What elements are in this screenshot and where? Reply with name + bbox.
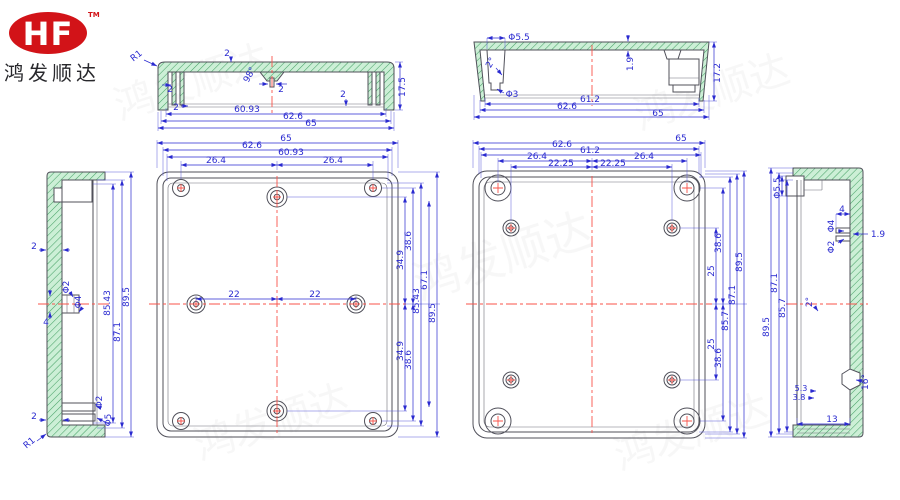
- dim-label: 2: [340, 90, 346, 100]
- lid-side-top-step: [62, 180, 92, 202]
- corner-screw-hole: [173, 180, 190, 197]
- dim-label: Φ5.5: [508, 33, 529, 43]
- dim-label: 13: [826, 415, 837, 425]
- dim-label: 25: [707, 265, 717, 276]
- drawing-canvas: 鸿发顺达 鸿发顺达 鸿发顺达 鸿发顺达 鸿发顺达 HF TM 鸿发顺达: [0, 0, 900, 500]
- dim-label: 26.4: [527, 152, 547, 162]
- base-screw-post: [487, 50, 505, 90]
- background-watermark: 鸿发顺达 鸿发顺达 鸿发顺达 鸿发顺达 鸿发顺达: [109, 36, 795, 479]
- base-side-rib: [836, 236, 850, 241]
- logo-trademark: TM: [88, 11, 100, 19]
- dim-label: 67.1: [420, 270, 430, 290]
- dim-label: 89.5: [735, 252, 745, 272]
- lid-mid-outline: [163, 178, 392, 431]
- dim-label: 26.4: [206, 156, 226, 166]
- dim-label: 62.6: [283, 112, 303, 122]
- dim-label: 87.1: [728, 285, 738, 305]
- extension-lines: [473, 140, 747, 438]
- dim-label: R1: [22, 436, 38, 451]
- corner-screw-hole: [365, 413, 382, 430]
- dim-label: 85.7: [721, 311, 731, 331]
- lid-fin: [376, 72, 380, 105]
- dim-label: 65: [675, 134, 686, 144]
- inner-screw-hole: [664, 220, 680, 236]
- dim-label: 2: [173, 103, 179, 113]
- dim-label: 2: [31, 412, 37, 422]
- dim-label: 85.7: [778, 298, 788, 318]
- dim-label: Φ5.5: [773, 177, 783, 198]
- dim-label: 22.25: [600, 159, 626, 169]
- lid-fin: [368, 72, 372, 105]
- watermark-text: 鸿发顺达: [629, 46, 795, 139]
- dim-label: 38.6: [404, 350, 414, 370]
- dim-label: 60.93: [234, 105, 260, 115]
- corner-boss: [485, 408, 511, 434]
- lid-side-notch: [54, 188, 62, 202]
- dim-label: 1.9: [626, 57, 636, 72]
- base-right-notch: [664, 50, 681, 59]
- dim-label: 38.6: [714, 233, 724, 253]
- dim-label: 38.6: [404, 231, 414, 251]
- dim-label: 38.6: [714, 348, 724, 368]
- dim-label: Φ5: [104, 414, 114, 427]
- cad-drawing-sheet: 鸿发顺达 鸿发顺达 鸿发顺达 鸿发顺达 鸿发顺达 HF TM 鸿发顺达: [0, 0, 900, 500]
- base-side-view: Φ5.5 4 Φ4 Φ2 1.9 2° 16° 5.3 3.8 13 85.7 …: [762, 168, 885, 437]
- corner-screw-hole: [173, 413, 190, 430]
- base-side-notch: [842, 369, 860, 390]
- dim-label: 4: [43, 318, 49, 328]
- dim-label: 22.25: [548, 159, 574, 169]
- dim-label: 4: [839, 205, 845, 215]
- base-right-foot: [673, 85, 695, 92]
- dim-label: 2: [167, 85, 173, 95]
- dim-label: 2: [278, 85, 284, 95]
- inner-screw-hole: [503, 372, 519, 388]
- watermark-text: 鸿发顺达: [189, 376, 355, 469]
- dim-label: 87.1: [770, 273, 780, 293]
- dim-label: 85.43: [103, 290, 113, 316]
- dim-label: 85.43: [412, 288, 422, 314]
- dim-label: 5.3: [795, 384, 808, 393]
- dim-label: Φ2: [62, 281, 72, 294]
- watermark-text: 鸿发顺达: [407, 202, 599, 310]
- dim-label: Φ4: [74, 295, 84, 308]
- dim-label: 26.4: [634, 152, 654, 162]
- base-side-rib: [836, 228, 850, 233]
- dim-label: 62.6: [557, 102, 577, 112]
- dim-label: 2: [224, 49, 230, 59]
- dim-label: 16°: [861, 374, 871, 390]
- dim-label: 26.4: [323, 156, 343, 166]
- dim-label: 61.2: [580, 95, 600, 105]
- dim-label: 2°: [805, 297, 815, 307]
- dim-label: Φ4: [827, 219, 837, 232]
- lid-side-view: 2 2 Φ2 Φ4 4 Φ2 Φ5 R1 85.43 87.1 89.5: [22, 172, 134, 451]
- dim-label: 22: [309, 290, 320, 300]
- base-face-view: 65 62.6 61.2 26.4 26.4 22.25 22.25 25 25…: [466, 134, 747, 438]
- dim-label: 65: [652, 109, 663, 119]
- corner-screw-hole: [365, 180, 382, 197]
- dim-label: 3.8: [793, 393, 806, 402]
- dim-label: R1: [129, 49, 145, 64]
- dim-label: 89.5: [428, 303, 438, 323]
- dim-label: 87.1: [113, 322, 123, 342]
- dim-label: 61.2: [580, 146, 600, 156]
- dim-label: 89.5: [122, 287, 132, 307]
- company-logo: HF TM 鸿发顺达: [4, 11, 100, 85]
- lid-fin: [180, 72, 184, 105]
- dim-label: 1.9: [871, 230, 886, 240]
- dim-label: 62.6: [242, 141, 262, 151]
- dim-label: 60.93: [278, 148, 304, 158]
- dim-label: 2: [31, 242, 37, 252]
- base-inner-outline: [484, 182, 694, 427]
- dim-label: 22: [228, 290, 239, 300]
- dim-label: Φ2: [827, 241, 837, 254]
- lid-side-groove: [62, 403, 95, 411]
- dim-label: Φ2: [95, 396, 105, 409]
- dim-label: 65: [305, 119, 316, 129]
- base-right-block: [669, 59, 699, 85]
- inner-screw-hole: [664, 372, 680, 388]
- dim-label: 17.2: [713, 63, 723, 83]
- dim-label: 62.6: [552, 140, 572, 150]
- dimension-lines: [473, 143, 744, 438]
- logo-brand-text: HF: [23, 15, 74, 53]
- logo-company-name: 鸿发顺达: [4, 61, 100, 85]
- lid-inner-outline: [168, 183, 387, 426]
- base-mid-outline: [479, 177, 699, 432]
- dim-label: 89.5: [762, 317, 772, 337]
- dim-label: 17.5: [398, 77, 408, 97]
- dim-label: 65: [280, 134, 291, 144]
- dim-label: 34.9: [396, 250, 406, 270]
- dim-label: Φ3: [506, 90, 519, 100]
- base-outer-outline: [473, 171, 705, 438]
